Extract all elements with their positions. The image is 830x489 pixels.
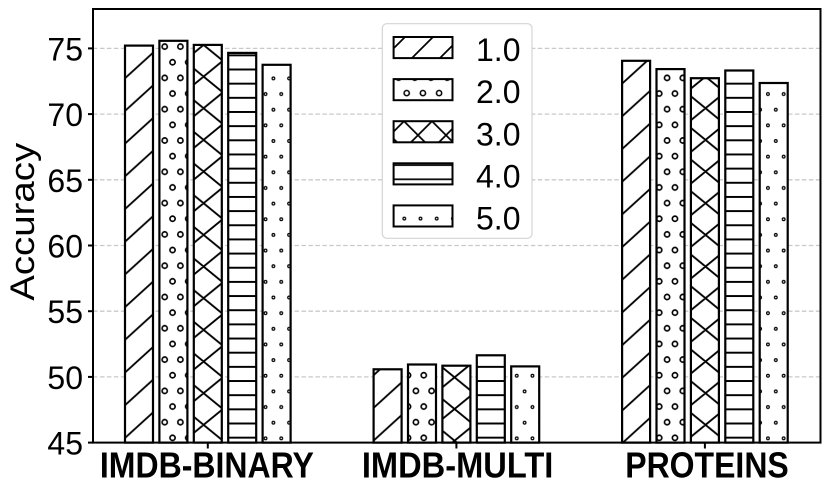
svg-text:1.0: 1.0 — [476, 32, 520, 68]
svg-text:75: 75 — [47, 31, 83, 67]
svg-text:45: 45 — [47, 426, 83, 462]
svg-text:55: 55 — [47, 294, 83, 330]
svg-text:60: 60 — [47, 229, 83, 265]
svg-text:50: 50 — [47, 360, 83, 396]
svg-text:65: 65 — [47, 163, 83, 199]
svg-text:3.0: 3.0 — [476, 116, 520, 152]
svg-text:IMDB-BINARY: IMDB-BINARY — [100, 445, 314, 486]
svg-text:PROTEINS: PROTEINS — [625, 445, 789, 486]
svg-text:2.0: 2.0 — [476, 74, 520, 110]
svg-text:Accuracy: Accuracy — [4, 143, 42, 301]
svg-text:70: 70 — [47, 97, 83, 133]
svg-text:4.0: 4.0 — [476, 158, 520, 194]
svg-text:IMDB-MULTI: IMDB-MULTI — [362, 445, 554, 486]
svg-text:5.0: 5.0 — [476, 200, 520, 236]
